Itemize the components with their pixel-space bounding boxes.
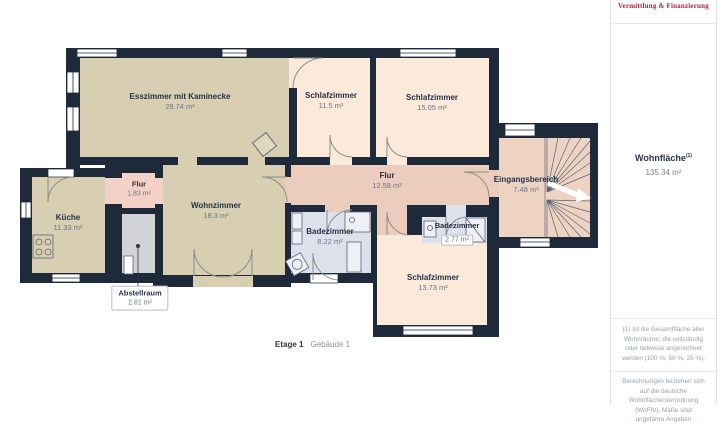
- room-name: Flur: [127, 180, 151, 190]
- room-name: Eingangsbereich: [494, 175, 558, 185]
- room-name: Esszimmer mit Kaminecke: [130, 92, 231, 102]
- footnote-1: (1) Ist die Gesamtfläche aller Wohnräume…: [620, 325, 707, 363]
- living-area-block: Wohnfläche(1) 135.34 m²: [611, 153, 716, 177]
- floor-caption: Etage 1 Gebäude 1: [275, 340, 350, 349]
- room-label-schlafzimmer-3: Schlafzimmer 13.73 m²: [407, 273, 459, 293]
- room-name: Flur: [372, 171, 402, 181]
- room-label-schlafzimmer-1: Schlafzimmer 11.5 m²: [305, 91, 357, 111]
- brand-text: Vermittlung & Finanzierung: [611, 2, 716, 10]
- room-label-abstellraum: Abstellraum 2.81 m²: [111, 286, 168, 311]
- divider: [611, 318, 716, 319]
- room-label-flur-klein: Flur 1.83 m²: [127, 180, 151, 199]
- room-area: 18.3 m²: [191, 211, 241, 221]
- living-area-label: Wohnfläche(1): [611, 153, 716, 163]
- room-flur-nook: [377, 205, 407, 235]
- room-name: Schlafzimmer: [305, 91, 357, 101]
- living-area-value: 135.34 m²: [611, 168, 716, 177]
- info-sidebar: Vermittlung & Finanzierung Wohnfläche(1)…: [610, 0, 717, 405]
- divider: [611, 371, 716, 372]
- room-area: 29.74 m²: [130, 102, 231, 112]
- room-name: Wohnzimmer: [191, 201, 241, 211]
- room-area: 2.81 m²: [118, 298, 161, 307]
- storage-door-icon: [124, 256, 133, 274]
- floorplan: Esszimmer mit Kaminecke 29.74 m² Schlafz…: [0, 0, 610, 405]
- room-name: Badezimmer: [306, 227, 354, 237]
- room-label-kueche: Küche 11.33 m²: [53, 213, 82, 233]
- room-area: 15.05 m²: [406, 103, 458, 113]
- room-name: Küche: [53, 213, 82, 223]
- divider: [611, 23, 716, 24]
- room-label-schlafzimmer-2: Schlafzimmer 15.05 m²: [406, 93, 458, 113]
- room-area: 2.77 m²: [441, 235, 473, 246]
- room-area: 11.33 m²: [53, 223, 82, 233]
- room-area: 13.73 m²: [407, 283, 459, 293]
- room-name: Schlafzimmer: [407, 273, 459, 283]
- sink-icon: [292, 213, 302, 229]
- room-area: 1.83 m²: [127, 189, 151, 198]
- room-name: Schlafzimmer: [406, 93, 458, 103]
- room-area-badezimmer-klein: 2.77 m²: [441, 228, 473, 249]
- floor-label: Etage 1: [275, 340, 303, 349]
- room-area: 12.58 m²: [372, 181, 402, 191]
- room-label-eingangsbereich: Eingangsbereich 7.48 m²: [494, 175, 558, 195]
- footnote-marker: (1): [686, 153, 692, 159]
- room-label-flur: Flur 12.58 m²: [372, 171, 402, 191]
- room-label-wohnzimmer: Wohnzimmer 18.3 m²: [191, 201, 241, 221]
- room-area: 7.48 m²: [494, 185, 558, 195]
- room-label-esszimmer: Esszimmer mit Kaminecke 29.74 m²: [130, 92, 231, 112]
- room-name: Abstellraum: [118, 289, 161, 299]
- room-label-badezimmer-gross: Badezimmer 8.22 m²: [306, 227, 354, 247]
- room-area: 11.5 m²: [305, 101, 357, 111]
- room-area: 8.22 m²: [306, 237, 354, 247]
- footnote-2: Berechnungen beziehen sich auf die deuts…: [620, 377, 707, 425]
- building-label: Gebäude 1: [310, 340, 350, 349]
